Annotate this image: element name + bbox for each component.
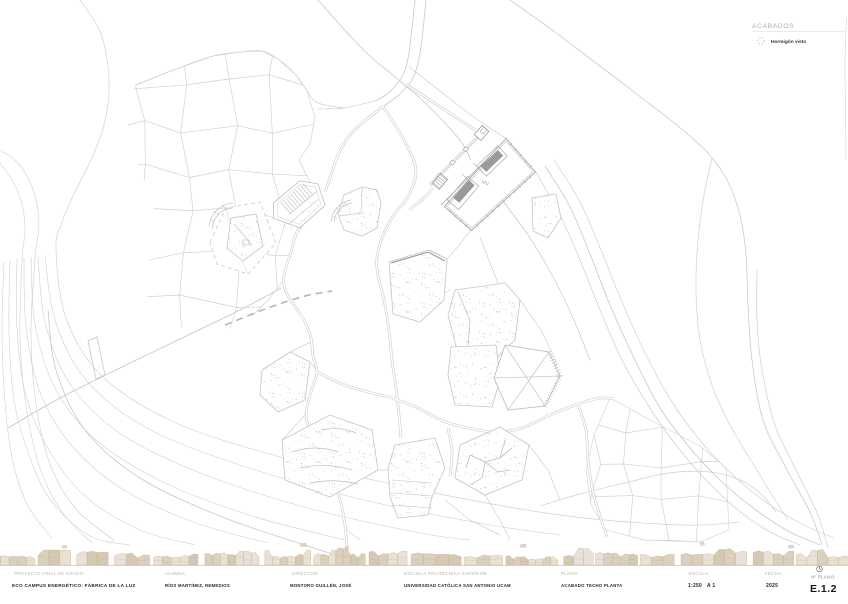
svg-text:PLANO:: PLANO: <box>561 571 579 576</box>
svg-text:PROYECTO FINAL DE GRADO:: PROYECTO FINAL DE GRADO: <box>14 571 85 576</box>
svg-text:FECHA:: FECHA: <box>765 571 783 576</box>
svg-text:ECO CAMPUS ENERGÉTICO: FÁBRICA: ECO CAMPUS ENERGÉTICO: FÁBRICA DE LA LUZ <box>12 581 135 588</box>
svg-text:RÍOS MARTÍNEZ, REMEDIOS: RÍOS MARTÍNEZ, REMEDIOS <box>165 583 230 588</box>
svg-text:ESCUELA POLITÉCNICA SUPERIOR: ESCUELA POLITÉCNICA SUPERIOR <box>404 571 487 576</box>
svg-text:DIRECTOR:: DIRECTOR: <box>292 571 319 576</box>
svg-text:ACABADOS: ACABADOS <box>752 23 794 30</box>
svg-text:1:250: 1:250 <box>688 583 702 589</box>
svg-text:ALUMNA:: ALUMNA: <box>165 571 187 576</box>
svg-text:UNIVERSIDAD CATÓLICA SAN ANTON: UNIVERSIDAD CATÓLICA SAN ANTONIO UCAM <box>404 583 511 588</box>
svg-text:Nº PLANO:: Nº PLANO: <box>811 575 836 580</box>
svg-text:ACABADO TECHO PLANTA: ACABADO TECHO PLANTA <box>561 583 623 588</box>
svg-text:Hormigón visto: Hormigón visto <box>771 39 806 45</box>
svg-text:A 1: A 1 <box>707 583 715 589</box>
svg-text:ESCALA:: ESCALA: <box>689 571 710 576</box>
svg-text:MONTORO GUILLÉN, JOSÉ: MONTORO GUILLÉN, JOSÉ <box>290 583 352 588</box>
svg-text:2025: 2025 <box>766 583 778 589</box>
svg-text:E.1.2: E.1.2 <box>810 583 837 595</box>
